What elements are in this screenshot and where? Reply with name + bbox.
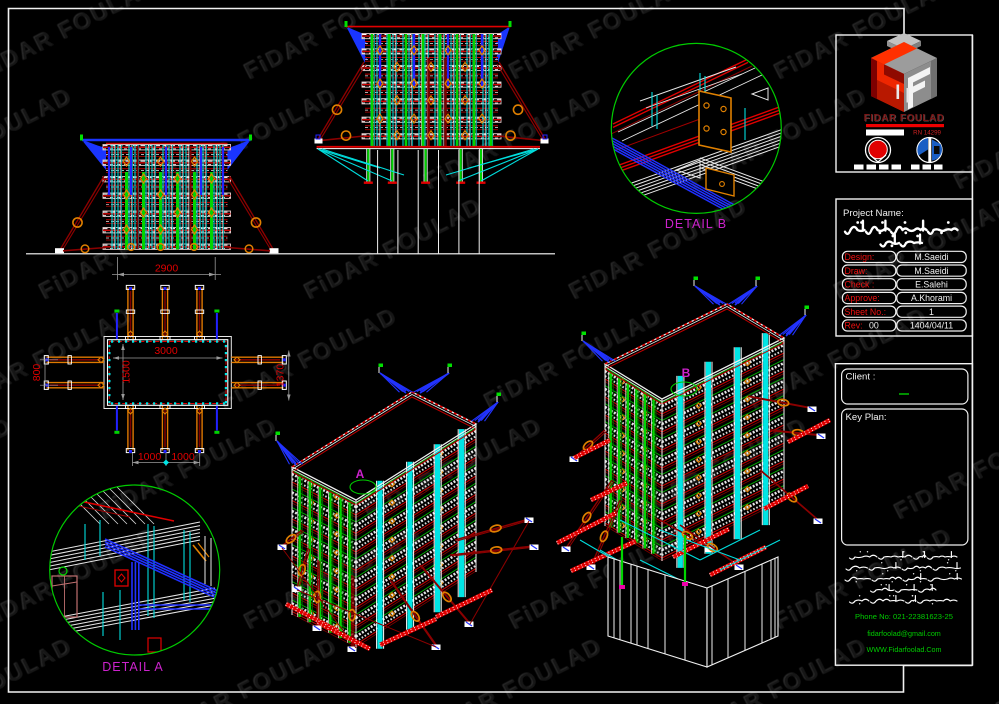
svg-text:Design:: Design:: [845, 252, 875, 262]
svg-text:DETAIL A: DETAIL A: [102, 660, 164, 674]
svg-text:RN 14299: RN 14299: [913, 130, 941, 137]
svg-text:Project Name:: Project Name:: [843, 208, 904, 219]
svg-text:1370: 1370: [275, 364, 287, 388]
svg-text:Key Plan:: Key Plan:: [846, 412, 887, 423]
svg-text:A: A: [356, 467, 365, 481]
svg-text:1000: 1000: [171, 451, 195, 463]
svg-text:Draw:: Draw:: [845, 266, 868, 276]
svg-text:M.Saeidi: M.Saeidi: [914, 266, 948, 276]
svg-text:M.Saeidi: M.Saeidi: [914, 252, 948, 262]
svg-text:1: 1: [929, 307, 934, 317]
svg-text:A.Khorami: A.Khorami: [911, 293, 952, 303]
svg-text:WWW.Fidarfoolad.Com: WWW.Fidarfoolad.Com: [866, 645, 941, 654]
svg-text:Approve:: Approve:: [845, 293, 880, 303]
svg-text:Sheet No.:: Sheet No.:: [845, 307, 887, 317]
svg-text:1000: 1000: [138, 451, 162, 463]
svg-text:800: 800: [31, 364, 43, 382]
svg-text:E.Salehi: E.Salehi: [915, 280, 948, 290]
svg-text:2900: 2900: [155, 263, 179, 275]
svg-text:fidarfoolad@gmail.com: fidarfoolad@gmail.com: [867, 629, 941, 638]
svg-text:1500: 1500: [121, 360, 133, 384]
svg-text:Rev:: Rev:: [845, 321, 863, 331]
svg-text:Phone No: 021-22381623-25: Phone No: 021-22381623-25: [855, 612, 953, 621]
svg-text:Check :: Check :: [845, 280, 875, 290]
svg-text:1404/04/11: 1404/04/11: [910, 321, 953, 331]
svg-text:FIDAR FOULAD: FIDAR FOULAD: [864, 113, 945, 124]
svg-text:B: B: [682, 366, 691, 380]
svg-text:DETAIL B: DETAIL B: [665, 217, 727, 231]
svg-text:00: 00: [869, 321, 879, 331]
svg-text:3000: 3000: [154, 345, 178, 357]
svg-text:Client :: Client :: [846, 372, 876, 383]
